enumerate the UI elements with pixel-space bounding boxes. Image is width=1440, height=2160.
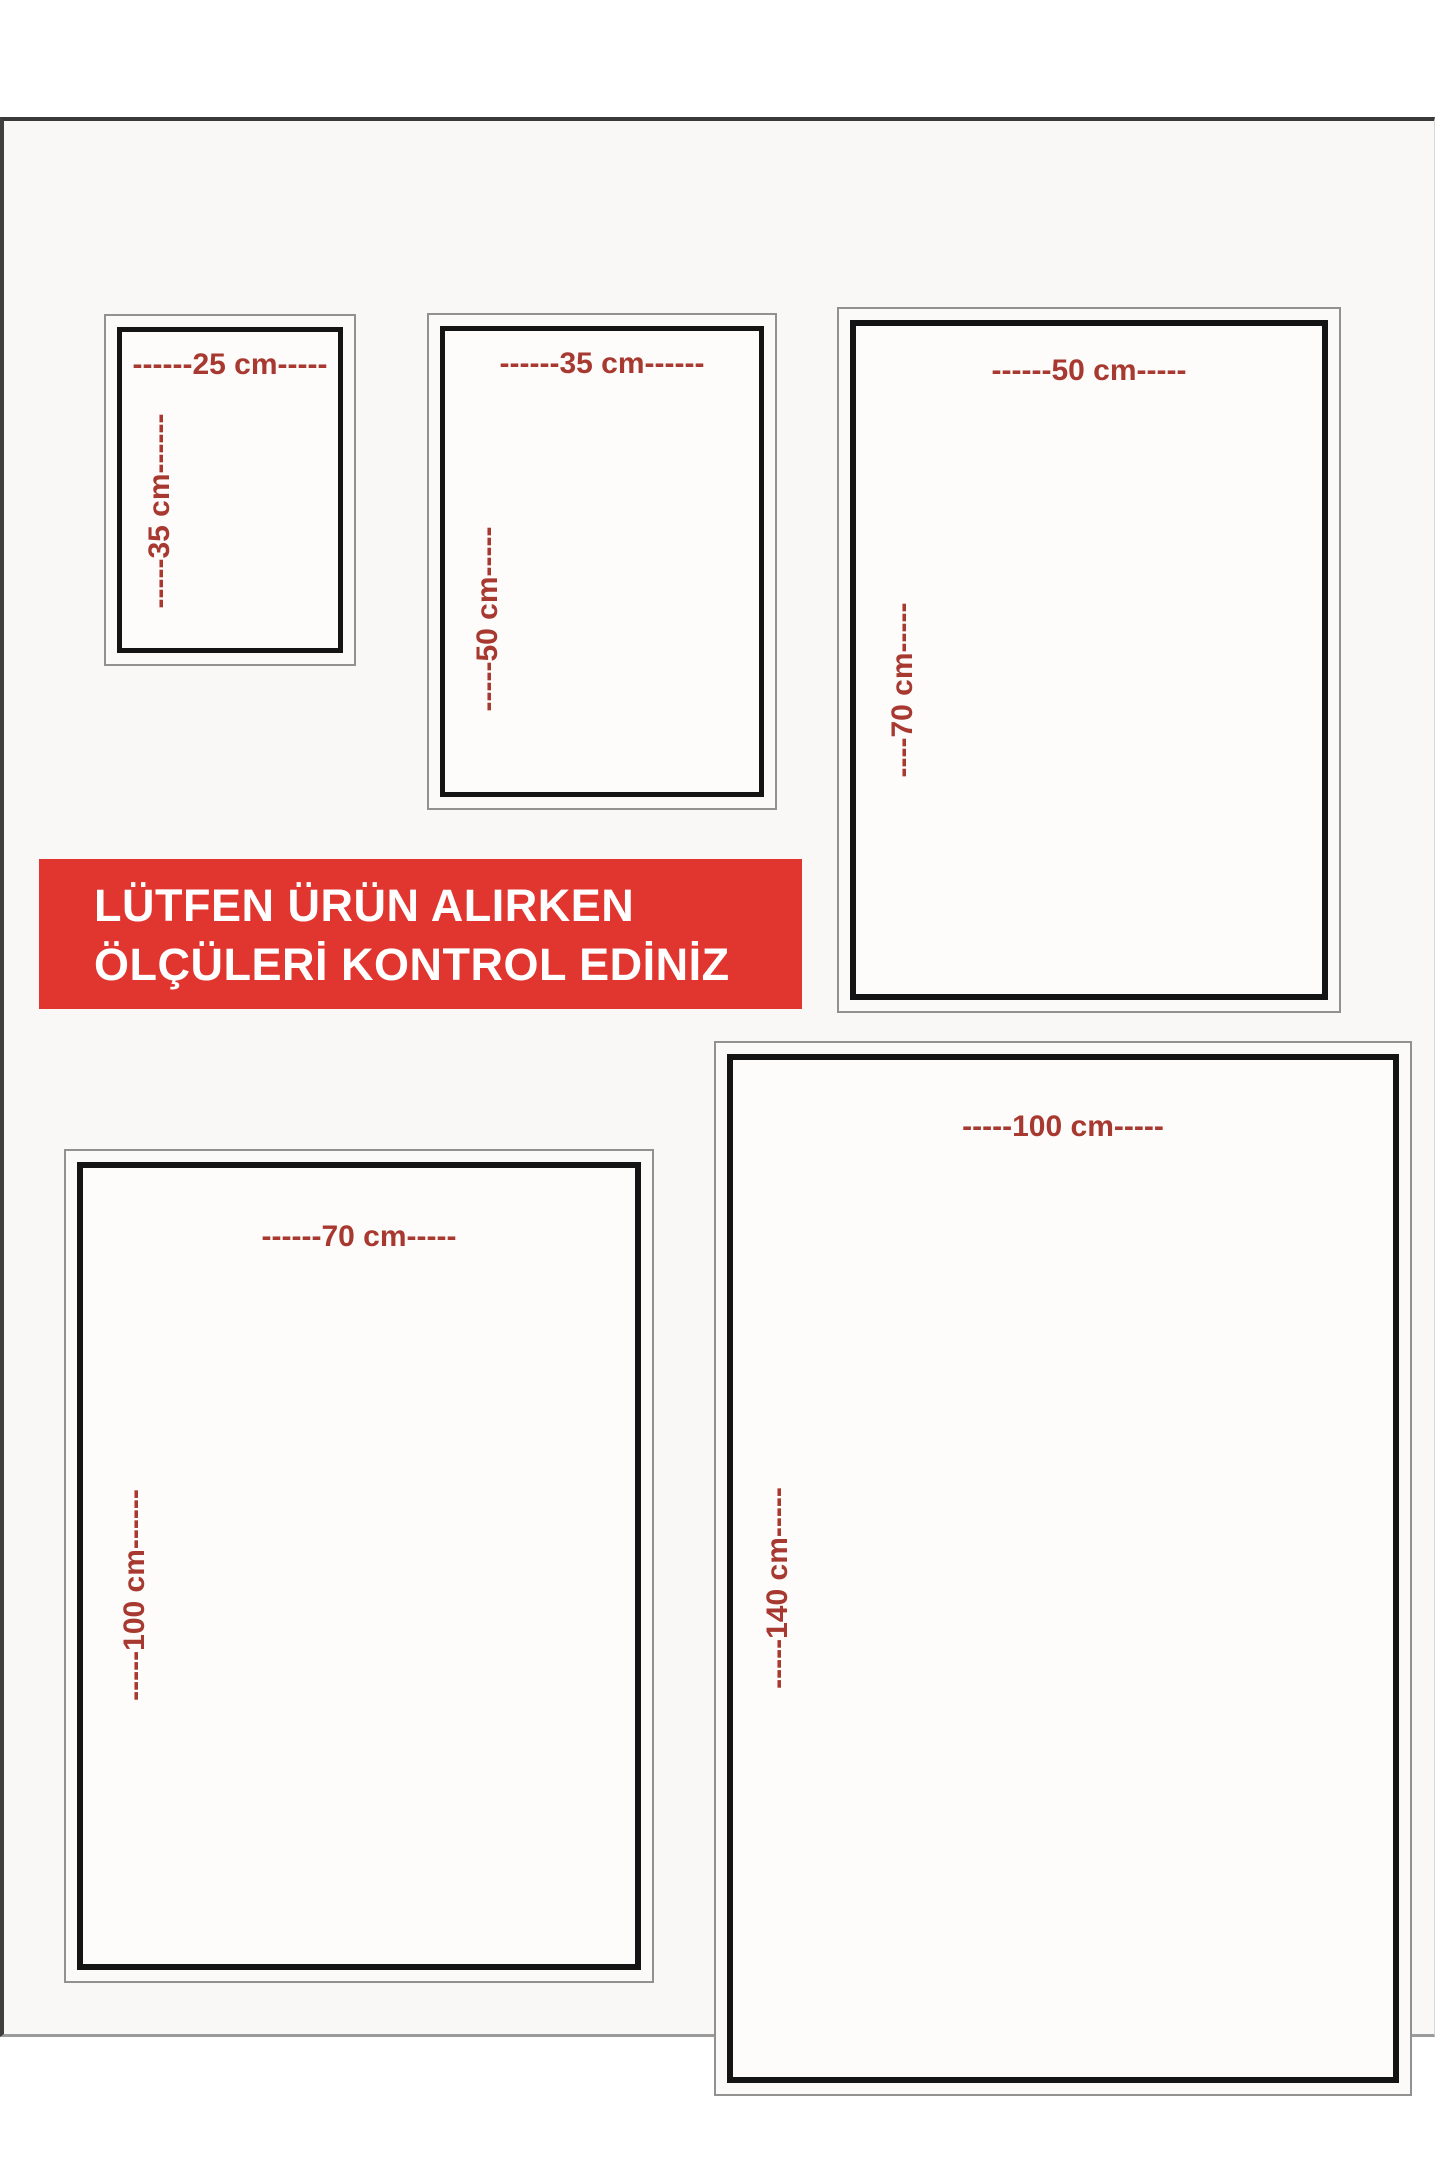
size-box-70x100-inner-frame: ------70 cm----- -----100 cm------ bbox=[77, 1162, 641, 1970]
warning-banner-line2: ÖLÇÜLERİ KONTROL EDİNİZ bbox=[94, 935, 802, 994]
size-box-100x140: -----100 cm----- -----140 cm----- bbox=[714, 1041, 1412, 2096]
warning-banner-line1: LÜTFEN ÜRÜN ALIRKEN bbox=[94, 876, 802, 935]
width-dimension-label: ------50 cm----- bbox=[856, 354, 1322, 388]
size-box-25x35-inner-frame: ------25 cm----- -----35 cm------ bbox=[117, 327, 343, 653]
size-chart-page: ------25 cm----- -----35 cm------ ------… bbox=[0, 0, 1440, 2160]
diagram-canvas: ------25 cm----- -----35 cm------ ------… bbox=[0, 117, 1435, 2037]
height-dimension-label: -----140 cm----- bbox=[761, 1487, 795, 1689]
height-dimension-label: -----100 cm------ bbox=[118, 1489, 152, 1701]
size-box-50x70: ------50 cm----- ----70 cm----- bbox=[837, 307, 1341, 1013]
width-dimension-label: ------70 cm----- bbox=[83, 1220, 635, 1254]
warning-banner: LÜTFEN ÜRÜN ALIRKEN ÖLÇÜLERİ KONTROL EDİ… bbox=[39, 859, 802, 1009]
width-dimension-label: ------35 cm------ bbox=[445, 347, 759, 381]
size-box-50x70-inner-frame: ------50 cm----- ----70 cm----- bbox=[850, 320, 1328, 1000]
width-dimension-label: -----100 cm----- bbox=[733, 1110, 1393, 1144]
height-dimension-label: -----35 cm------ bbox=[143, 414, 177, 609]
width-dimension-label: ------25 cm----- bbox=[122, 348, 338, 382]
height-dimension-label: -----50 cm----- bbox=[471, 527, 505, 712]
size-box-35x50-inner-frame: ------35 cm------ -----50 cm----- bbox=[440, 326, 764, 797]
height-dimension-label: ----70 cm----- bbox=[886, 603, 920, 778]
size-box-100x140-inner-frame: -----100 cm----- -----140 cm----- bbox=[727, 1054, 1399, 2083]
size-box-25x35: ------25 cm----- -----35 cm------ bbox=[104, 314, 356, 666]
size-box-70x100: ------70 cm----- -----100 cm------ bbox=[64, 1149, 654, 1983]
size-box-35x50: ------35 cm------ -----50 cm----- bbox=[427, 313, 777, 810]
